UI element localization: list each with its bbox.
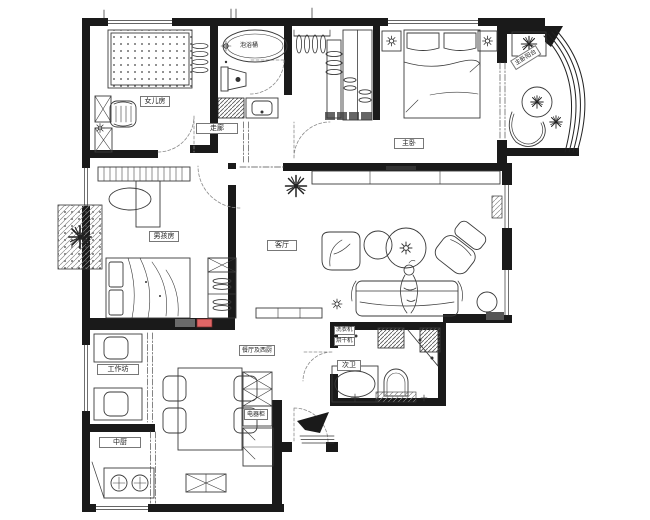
wardrobe-door-arc — [294, 122, 330, 158]
washing-machine-icon — [94, 334, 142, 362]
closet-base-shaded — [325, 112, 372, 120]
double-bed-icon — [404, 30, 480, 118]
work-balcony-slider — [148, 333, 153, 422]
door-arcs — [158, 60, 332, 442]
pillow-right — [444, 33, 476, 51]
dining-chair-icon — [163, 376, 186, 401]
washer-hatched-icon — [378, 328, 404, 348]
pillow — [109, 262, 123, 287]
dining-furniture — [163, 368, 273, 492]
nightstand-left-icon — [382, 31, 401, 51]
master-bath-door-arc — [250, 60, 284, 94]
master-balcony-slider — [500, 63, 505, 140]
room-label-living: 客厅 — [267, 240, 297, 251]
wall-rack-icon — [192, 43, 208, 72]
heater-dark — [486, 312, 504, 320]
walls — [82, 18, 579, 512]
fridge-icon — [243, 428, 273, 466]
bookshelf-icon — [98, 167, 190, 181]
tv-icon — [386, 166, 416, 170]
label-dryer: 烘干机 — [334, 337, 355, 346]
single-bed-icon — [108, 30, 192, 88]
room-label-second-bath: 次卫 — [337, 360, 361, 371]
entry-steps-icon — [300, 436, 334, 443]
toilet-icon — [221, 61, 246, 91]
work-balcony-furniture — [94, 334, 142, 420]
windows — [82, 18, 512, 512]
kitchen-slider — [151, 432, 156, 503]
daughter-room-furniture — [95, 30, 208, 152]
corner-table-icon — [477, 292, 497, 312]
threshold-gray — [175, 319, 195, 327]
armchair-icon — [110, 101, 136, 127]
hangers-icon — [294, 30, 330, 53]
balcony-curved-window — [544, 30, 585, 152]
room-label-master: 主卧 — [394, 138, 424, 149]
window-top-master — [388, 18, 478, 26]
washing-machine-2-icon — [94, 388, 142, 420]
low-cabinet-icon — [256, 308, 322, 318]
bath-mat-icon — [376, 392, 416, 402]
floor-plan-drawing — [0, 0, 650, 520]
room-label-daughter: 女儿房 — [140, 96, 170, 107]
room-label-boy: 男孩房 — [149, 231, 179, 242]
living-plant-icon — [286, 176, 307, 197]
label-washer: 洗衣机 — [334, 326, 355, 335]
bath-hatched-wall — [218, 98, 244, 118]
entry-arrow-icon — [297, 412, 329, 433]
threshold-red — [197, 319, 212, 327]
room-label-dining: 餐厅及西厨 — [239, 345, 275, 356]
counter-edge — [92, 462, 104, 498]
kitchen-furniture — [92, 462, 154, 498]
dining-table-icon — [178, 368, 242, 450]
flower-bed — [58, 205, 102, 269]
pillow — [109, 290, 123, 315]
desk-icon — [136, 181, 160, 227]
bed-icon — [106, 258, 190, 318]
tall-closet-icon — [343, 30, 372, 120]
radiator-right — [492, 196, 502, 218]
pillow-left — [407, 33, 439, 51]
wardrobe-furniture — [294, 30, 372, 120]
daughter-room-door-arc — [158, 116, 194, 152]
room-label-kitchen: 中厨 — [99, 437, 141, 448]
curved-chair-icon — [509, 112, 545, 147]
lounge-armchair-icon — [322, 232, 360, 270]
floor-drain-dot — [355, 335, 358, 338]
floor-flower-icon — [332, 299, 342, 309]
room-label-work-balcony: 工作坊 — [97, 364, 139, 375]
second-bath-door-arc — [303, 352, 332, 381]
side-table-round-icon — [364, 231, 392, 259]
round-table-icon — [522, 87, 552, 117]
label-bathtub: 泡浴桶 — [238, 41, 260, 50]
entry-symbols — [297, 412, 334, 443]
stove-icon — [104, 468, 154, 498]
mop-basin-icon — [332, 366, 378, 402]
window-left — [82, 168, 90, 206]
label-appliance-cabinet: 电器柜 — [244, 409, 268, 420]
lounge-chair-icon — [432, 217, 491, 277]
master-bedroom-furniture — [382, 30, 497, 118]
window-top-left — [108, 18, 172, 26]
boy-room-furniture — [98, 167, 236, 318]
sink-vanity-icon — [246, 98, 278, 118]
nightstand-right-icon — [478, 31, 497, 51]
desk-chair-icon — [109, 188, 151, 210]
window-kitchen-bottom — [96, 504, 148, 512]
hanger-rack-icon — [326, 40, 342, 118]
small-plant-icon — [550, 116, 563, 129]
corridor-opening-marker — [244, 122, 249, 162]
floor-cabinet-icon — [95, 128, 112, 152]
vanity-desk-icon — [95, 96, 111, 122]
entry-door-gap — [292, 442, 326, 452]
sofa-icon — [352, 281, 463, 316]
dimension-ticks — [104, 8, 312, 18]
floor-plan-canvas: 女儿房 泡浴桶 走廊 主卧 主卧阳台 男孩房 客厅 工作坊 中厨 餐厅及西厨 电… — [0, 0, 650, 520]
bench-icon — [186, 474, 226, 492]
room-label-corridor: 走廊 — [196, 123, 238, 134]
dining-chair-icon — [163, 408, 186, 433]
window-living-right-1 — [502, 185, 512, 228]
window-left-lower — [82, 345, 90, 411]
dining-chair-icon — [234, 376, 257, 401]
window-living-right-2 — [502, 270, 512, 315]
